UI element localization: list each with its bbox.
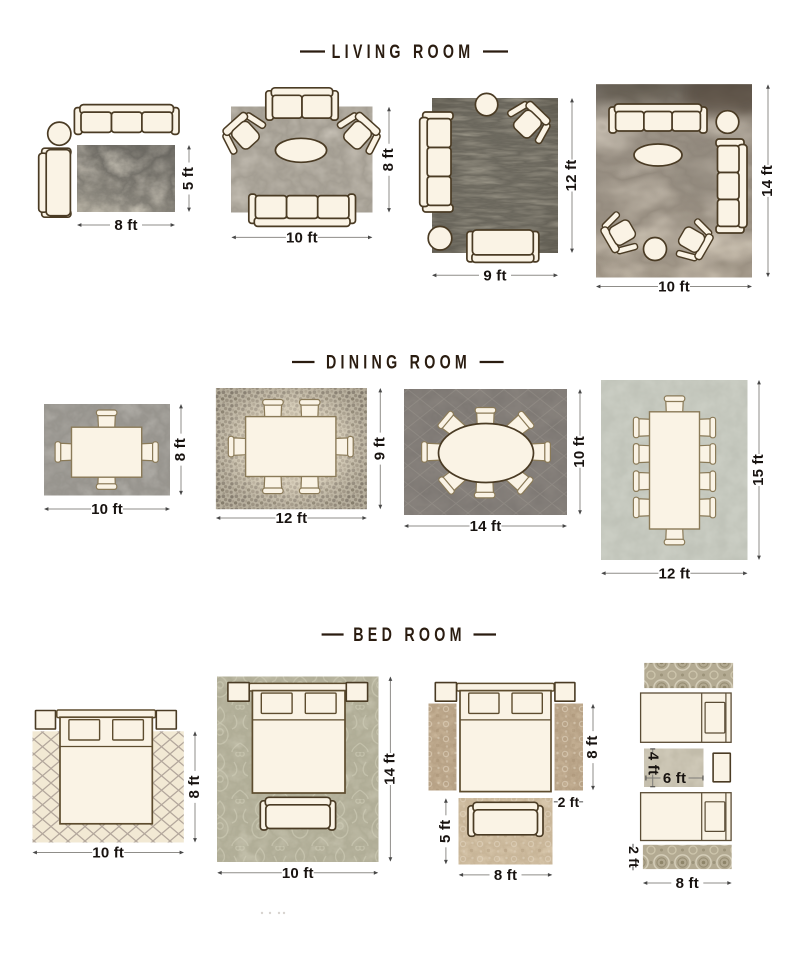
svg-text:8 ft: 8 ft: [380, 148, 397, 171]
svg-text:9 ft: 9 ft: [372, 437, 389, 460]
svg-text:10 ft: 10 ft: [92, 845, 124, 862]
svg-text:5 ft: 5 ft: [437, 820, 454, 843]
svg-text:2 ft: 2 ft: [626, 846, 642, 868]
svg-text:8 ft: 8 ft: [584, 735, 601, 758]
svg-text:10 ft: 10 ft: [282, 865, 314, 882]
svg-text:10 ft: 10 ft: [286, 230, 318, 247]
svg-text:BED ROOM: BED ROOM: [353, 624, 466, 645]
svg-text:8 ft: 8 ft: [676, 875, 699, 892]
svg-text:2 ft: 2 ft: [558, 794, 580, 810]
svg-text:10 ft: 10 ft: [91, 501, 123, 518]
svg-text:8 ft: 8 ft: [114, 217, 137, 234]
svg-text:8 ft: 8 ft: [186, 775, 203, 798]
svg-text:LIVING ROOM: LIVING ROOM: [332, 41, 475, 62]
svg-text:10 ft: 10 ft: [571, 436, 588, 468]
svg-text:12 ft: 12 ft: [563, 160, 580, 192]
svg-text:9 ft: 9 ft: [483, 268, 506, 285]
svg-text:6 ft: 6 ft: [663, 770, 686, 787]
svg-text:10 ft: 10 ft: [658, 279, 690, 296]
svg-text:15 ft: 15 ft: [750, 454, 767, 486]
svg-text:8 ft: 8 ft: [494, 867, 517, 884]
svg-text:12 ft: 12 ft: [658, 566, 690, 583]
svg-text:8 ft: 8 ft: [172, 438, 189, 461]
svg-text:DINING ROOM: DINING ROOM: [326, 352, 471, 373]
svg-text:14 ft: 14 ft: [382, 753, 399, 785]
svg-text:4 ft: 4 ft: [645, 752, 662, 775]
svg-text:14 ft: 14 ft: [759, 165, 776, 197]
svg-text:12 ft: 12 ft: [275, 510, 307, 527]
svg-text:14 ft: 14 ft: [470, 518, 502, 535]
svg-text:5 ft: 5 ft: [180, 167, 197, 190]
